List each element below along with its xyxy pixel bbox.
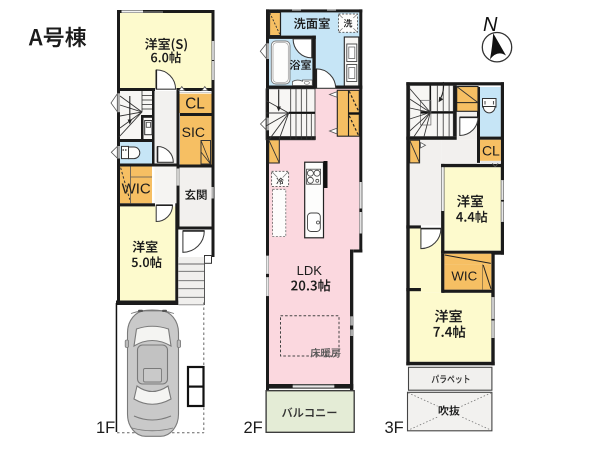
svg-text:SIC: SIC <box>182 124 205 140</box>
svg-text:CL: CL <box>185 95 205 112</box>
svg-text:3F: 3F <box>385 419 404 437</box>
svg-text:1F: 1F <box>96 419 115 437</box>
svg-text:WIC: WIC <box>122 180 151 197</box>
svg-text:LDK: LDK <box>297 263 323 278</box>
svg-text:2F: 2F <box>244 419 263 437</box>
svg-text:WIC: WIC <box>451 268 477 283</box>
svg-text:N: N <box>483 14 498 36</box>
svg-text:CL: CL <box>482 142 500 158</box>
